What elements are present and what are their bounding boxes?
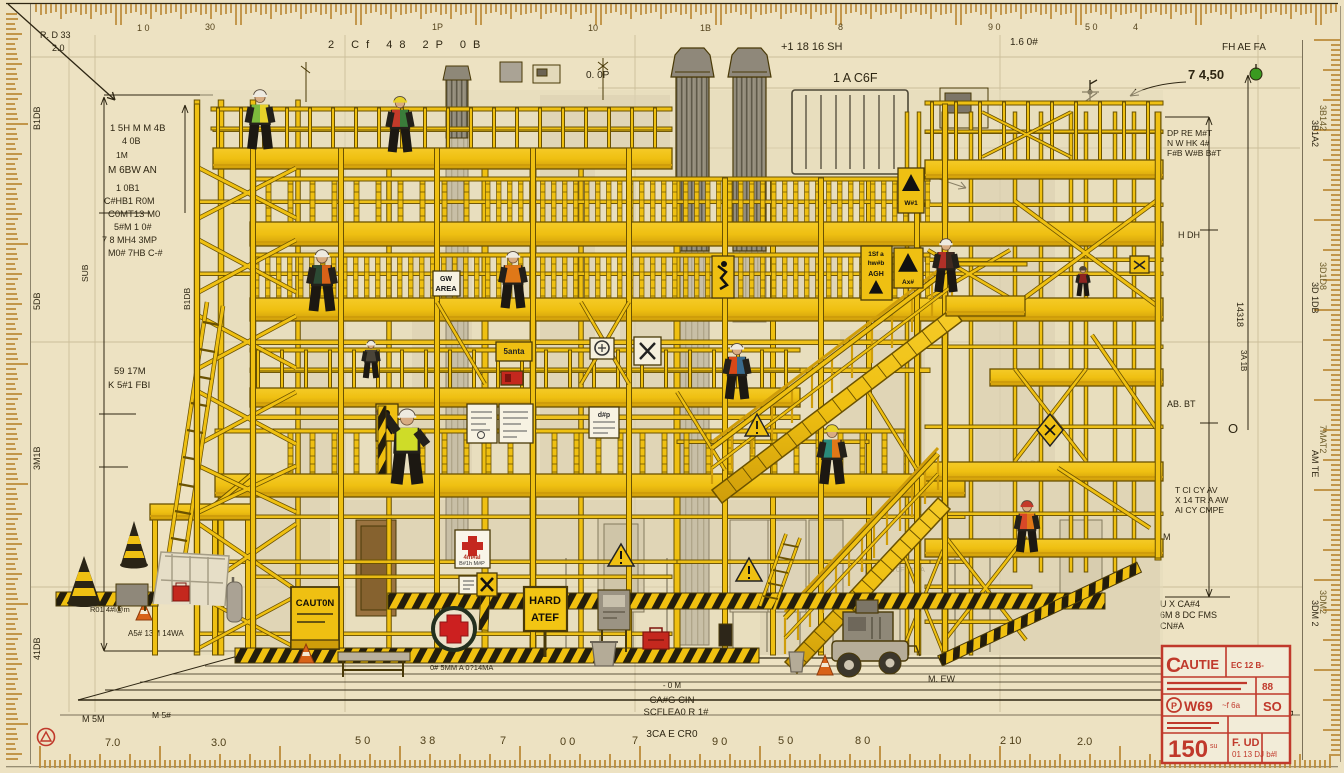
svg-text:1Sf a: 1Sf a (868, 251, 884, 258)
svg-text:AB. BT: AB. BT (1167, 399, 1196, 409)
svg-text:7.0: 7.0 (105, 737, 120, 749)
svg-text:1 0: 1 0 (137, 23, 150, 33)
svg-text:14318: 14318 (1235, 302, 1245, 327)
svg-text:150: 150 (1168, 736, 1208, 763)
svg-text:K 5#1 FBI: K 5#1 FBI (108, 380, 150, 391)
svg-text:2.0: 2.0 (52, 43, 65, 53)
svg-text:7 4,50: 7 4,50 (1188, 67, 1224, 82)
svg-text:1 0B1: 1 0B1 (116, 183, 140, 193)
svg-text:hw#b: hw#b (868, 260, 885, 267)
svg-text:EC 12 B-: EC 12 B- (1231, 661, 1264, 670)
svg-text:SUB: SUB (80, 264, 90, 282)
svg-text:+1 18 16 SH: +1 18 16 SH (781, 41, 843, 53)
svg-text:DP RE M#T: DP RE M#T (1167, 128, 1212, 138)
svg-text:59 17M: 59 17M (114, 366, 146, 377)
svg-text:HARD: HARD (529, 595, 561, 607)
svg-text:8 0: 8 0 (855, 735, 870, 747)
svg-text:6M 8 DC FMS: 6M 8 DC FMS (1160, 610, 1217, 620)
svg-text:3CA E CR0: 3CA E CR0 (646, 729, 698, 740)
svg-text:SO: SO (1263, 699, 1282, 714)
svg-text:4 0B: 4 0B (122, 136, 141, 146)
svg-text:R. D 33: R. D 33 (40, 30, 71, 40)
svg-text:F. UD: F. UD (1232, 737, 1260, 749)
svg-text:FH AE FA: FH AE FA (1222, 42, 1266, 53)
svg-text:H DH: H DH (1178, 230, 1200, 240)
svg-text:2 10: 2 10 (1000, 735, 1021, 747)
svg-text:7: 7 (500, 735, 506, 747)
svg-text:1P: 1P (432, 22, 443, 32)
svg-text:M: M (1163, 532, 1171, 542)
svg-text:0. 0P: 0. 0P (586, 70, 610, 81)
svg-text:0# 5MM A 0?14MA: 0# 5MM A 0?14MA (430, 663, 493, 672)
svg-text:4: 4 (1133, 22, 1138, 32)
svg-text:O: O (1228, 421, 1238, 436)
svg-text:AREA: AREA (435, 284, 457, 293)
svg-text:C0MT13 M0: C0MT13 M0 (108, 209, 160, 220)
svg-text:5DB: 5DB (32, 292, 42, 310)
svg-text:AI CY CMPE: AI CY CMPE (1175, 505, 1224, 515)
svg-text:C#HB1 R0M: C#HB1 R0M (104, 196, 155, 206)
svg-text:C: C (1166, 654, 1181, 677)
svg-text:M0# 7HB C-#: M0# 7HB C-# (108, 248, 163, 258)
svg-text:7: 7 (632, 735, 638, 747)
svg-text:B1DB: B1DB (182, 287, 192, 310)
svg-text:88: 88 (1262, 682, 1274, 693)
svg-text:~f 6a: ~f 6a (1222, 701, 1241, 710)
svg-text:3.0: 3.0 (211, 737, 226, 749)
svg-text:1 5H M M 4B: 1 5H M M 4B (110, 123, 165, 134)
svg-text:SCFLEA0 R 1#: SCFLEA0 R 1# (644, 707, 710, 718)
svg-text:9 0: 9 0 (712, 736, 727, 748)
svg-text:3M1B: 3M1B (32, 446, 42, 470)
svg-text:1M: 1M (116, 150, 128, 160)
svg-text:AUTIE: AUTIE (1180, 657, 1219, 672)
svg-text:3D 1DB: 3D 1DB (1310, 282, 1320, 314)
svg-text:41DB: 41DB (32, 637, 42, 660)
svg-text:d#p: d#p (598, 412, 610, 419)
svg-text:X 14 TR A AW: X 14 TR A AW (1175, 495, 1228, 505)
svg-text:W69: W69 (1184, 698, 1213, 714)
svg-text:8: 8 (838, 22, 843, 32)
svg-text:CN#A: CN#A (1160, 621, 1184, 631)
svg-text:P: P (1171, 701, 1177, 711)
svg-text:5 0: 5 0 (1085, 22, 1098, 32)
svg-text:CAUT0N: CAUT0N (296, 598, 335, 609)
svg-text:3A 1B: 3A 1B (1239, 350, 1248, 371)
svg-text:F#B W#B B#T: F#B W#B B#T (1167, 148, 1221, 158)
svg-text:5#M 1 0#: 5#M 1 0# (114, 222, 152, 232)
svg-text:M 6BW AN: M 6BW AN (108, 165, 157, 176)
svg-text:3DM 2: 3DM 2 (1310, 600, 1320, 627)
svg-text:5 0: 5 0 (355, 735, 370, 747)
svg-text:T CI CY AV: T CI CY AV (1175, 485, 1218, 495)
svg-text:01 13 DJ b#l: 01 13 DJ b#l (1232, 750, 1277, 759)
svg-text:W#1: W#1 (904, 200, 918, 207)
svg-text:5anta: 5anta (504, 347, 525, 356)
svg-text:7 8 MH4 3MP: 7 8 MH4 3MP (102, 235, 157, 245)
svg-text:30: 30 (205, 22, 215, 32)
svg-text:1B: 1B (700, 23, 711, 33)
svg-text:B#1h M#P: B#1h M#P (459, 561, 485, 567)
svg-text:U X CA#4: U X CA#4 (1160, 599, 1200, 609)
svg-text:su: su (1210, 743, 1218, 750)
svg-text:3B1A2: 3B1A2 (1310, 120, 1320, 147)
svg-text:Ax#: Ax# (902, 279, 914, 286)
svg-text:2 Cf 48 2P 0B: 2 Cf 48 2P 0B (328, 39, 487, 51)
svg-text:B1DB: B1DB (32, 106, 42, 130)
svg-text:ATEF: ATEF (531, 612, 559, 624)
svg-text:3 8: 3 8 (420, 735, 435, 747)
svg-text:AM TE: AM TE (1310, 450, 1320, 477)
svg-text:5 0: 5 0 (778, 735, 793, 747)
svg-text:N W HK 4#: N W HK 4# (1167, 138, 1210, 148)
svg-text:M. EW: M. EW (928, 674, 956, 684)
svg-text:AGH: AGH (868, 271, 884, 278)
svg-text:1 A C6F: 1 A C6F (833, 71, 878, 85)
svg-text:2.0: 2.0 (1077, 736, 1092, 748)
svg-text:0 0: 0 0 (560, 736, 575, 748)
svg-text:10: 10 (588, 23, 598, 33)
svg-text:1.6 0#: 1.6 0# (1010, 37, 1038, 48)
svg-text:M 5M: M 5M (82, 714, 105, 724)
svg-text:GW: GW (440, 276, 452, 283)
svg-text:9 0: 9 0 (988, 22, 1001, 32)
